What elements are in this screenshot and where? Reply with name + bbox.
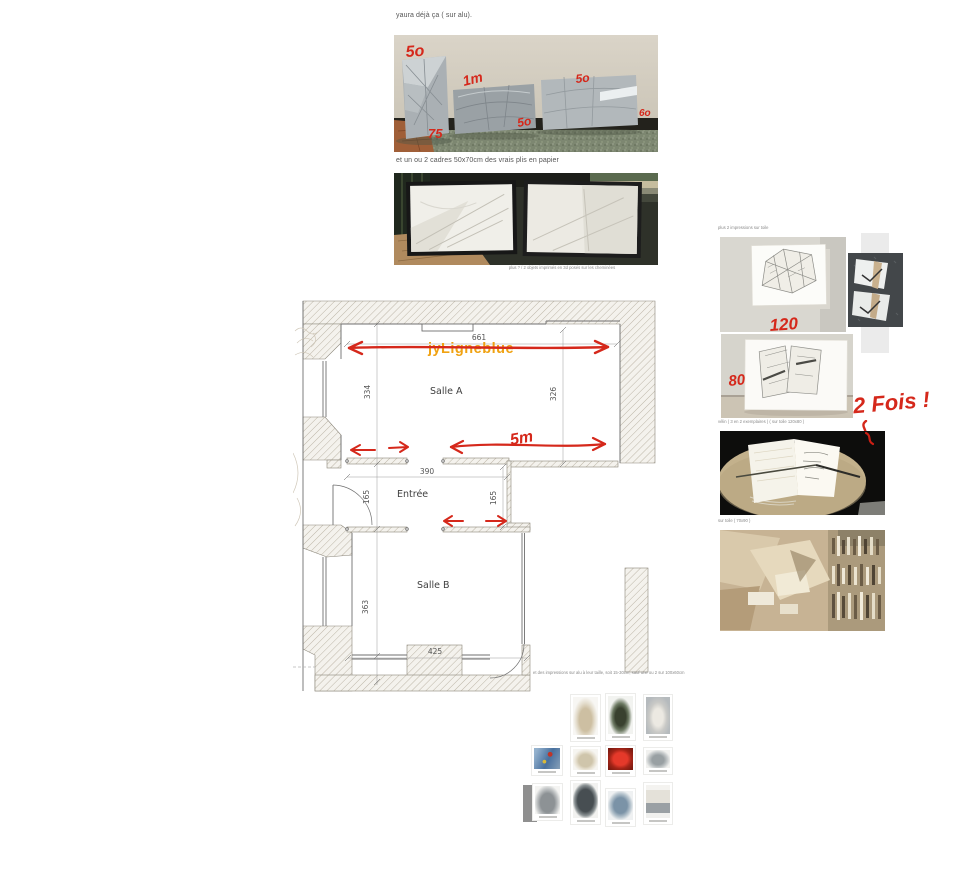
- photo-folded-booklets: [848, 253, 903, 327]
- dim-326: 326: [549, 387, 558, 402]
- thumbnail-image: [646, 785, 670, 818]
- framed-work-1: [406, 180, 517, 256]
- dim-363: 363: [361, 600, 370, 615]
- thumbnail-colored-map: [531, 745, 563, 776]
- thumbnail-image: [573, 749, 598, 770]
- photo-beige-collage: [720, 530, 885, 631]
- thumbnail-caption: [539, 816, 557, 818]
- red-arrow-top: [349, 347, 608, 348]
- annotation-2fois: 2 Fois !: [852, 387, 931, 420]
- photo-canvas-120: 120: [720, 237, 846, 332]
- annotation-80: 80: [728, 371, 747, 390]
- annotation-60-edge: 6o: [639, 108, 651, 119]
- photo-alu-prints: 5o 1m 5o 75 5o 6o: [394, 35, 658, 152]
- thumbnail-image: [646, 750, 670, 768]
- thumbnail-caption: [577, 772, 595, 774]
- post2-intro: et un ou 2 cadres 50x70cm des vrais plis…: [396, 157, 559, 164]
- bottom-intro: et des impressions sur alu à leur taille…: [533, 671, 691, 676]
- thumbnail-image: [534, 748, 560, 769]
- thumbnail-caption: [538, 771, 557, 773]
- annotation-50-right: 5o: [575, 71, 590, 86]
- annotation-75: 75: [428, 126, 443, 141]
- thumbnail-gray-rock: [532, 783, 563, 821]
- thumbnail-image: [608, 696, 633, 734]
- thumbnail-white-object-pedestal: [643, 782, 673, 825]
- thumbnail-image: [646, 697, 670, 734]
- thumbnail-beige-object-1: [570, 694, 601, 742]
- salleb-door-arc: [490, 644, 524, 678]
- framed-work-2: [523, 180, 642, 258]
- room-label-salle-b: Salle B: [417, 580, 450, 591]
- thumbnail-caption: [612, 772, 630, 774]
- floorplan-walls: [303, 301, 655, 691]
- thumbnail-caption: [577, 820, 595, 822]
- annotation-120: 120: [769, 314, 799, 332]
- room-label-salle-a: Salle A: [430, 386, 463, 397]
- thumbnail-image: [573, 697, 598, 735]
- dimension-lines: [344, 321, 620, 685]
- canvas-drawing-b: [745, 340, 848, 411]
- thumbnail-beige-object-2: [570, 746, 601, 777]
- thumbnail-dark-pleated-object: [570, 780, 601, 825]
- watermark-jyligneblue: jyLigneblue: [427, 341, 514, 357]
- thumbnail-caption: [612, 822, 630, 824]
- rightcol-caption-mid: vélin ( 3 en 2 exemplaires ) ( sur toile…: [718, 420, 858, 425]
- rightcol-caption-book: sur toile ( 70x90 ): [718, 519, 838, 524]
- post1-intro: yaura déjà ça ( sur alu).: [396, 12, 472, 19]
- red-arrow-left-small: [351, 445, 375, 455]
- red-annotations: [349, 341, 608, 526]
- document-page: yaura déjà ça ( sur alu).: [0, 0, 959, 874]
- room-label-entree: Entrée: [397, 489, 428, 500]
- thumbnail-image: [573, 783, 598, 818]
- canvas-drawing-a: [751, 244, 826, 305]
- thumbnail-blue-object: [605, 788, 636, 827]
- thumbnail-caption: [577, 737, 595, 739]
- dim-165-left: 165: [362, 490, 371, 505]
- annotation-50-left: 5o: [405, 43, 425, 61]
- detached-wall-column: [625, 568, 648, 672]
- dim-165-right: 165: [489, 491, 498, 506]
- thumbnail-red-object: [605, 745, 636, 777]
- dim-425: 425: [428, 647, 443, 656]
- photo-framed-works: [394, 173, 658, 265]
- thumbnail-caption: [649, 736, 666, 738]
- thumbnail-image: [535, 786, 560, 814]
- post2-caption: plus ? / 2 objets imprimés en 3d posés s…: [497, 266, 627, 271]
- thumbnail-caption: [649, 770, 666, 772]
- thumbnail-gray-object-1: [643, 747, 673, 775]
- rightcol-caption-top: plus 2 impressions sur toile: [718, 226, 838, 231]
- photo-canvas-80: 80: [721, 334, 853, 418]
- site-sketch: [293, 328, 319, 667]
- thumbnail-image: [608, 748, 633, 770]
- thumbnail-caption: [612, 736, 630, 738]
- floorplan: 661 334 326 390 165 165 363 425 Salle A …: [293, 293, 658, 703]
- thumbnail-image: [608, 791, 633, 820]
- red-arrow-entry-left: [444, 516, 463, 526]
- thumbnail-plaster-figure: [643, 694, 673, 741]
- photo-notebook: [720, 431, 885, 515]
- thumbnail-caption: [649, 820, 666, 822]
- red-arrow-right-small: [389, 442, 408, 452]
- annotation-50-mid: 5o: [516, 114, 532, 130]
- thumbnail-dark-angular-object: [605, 693, 636, 741]
- dim-334: 334: [363, 385, 372, 400]
- dim-390: 390: [420, 467, 435, 476]
